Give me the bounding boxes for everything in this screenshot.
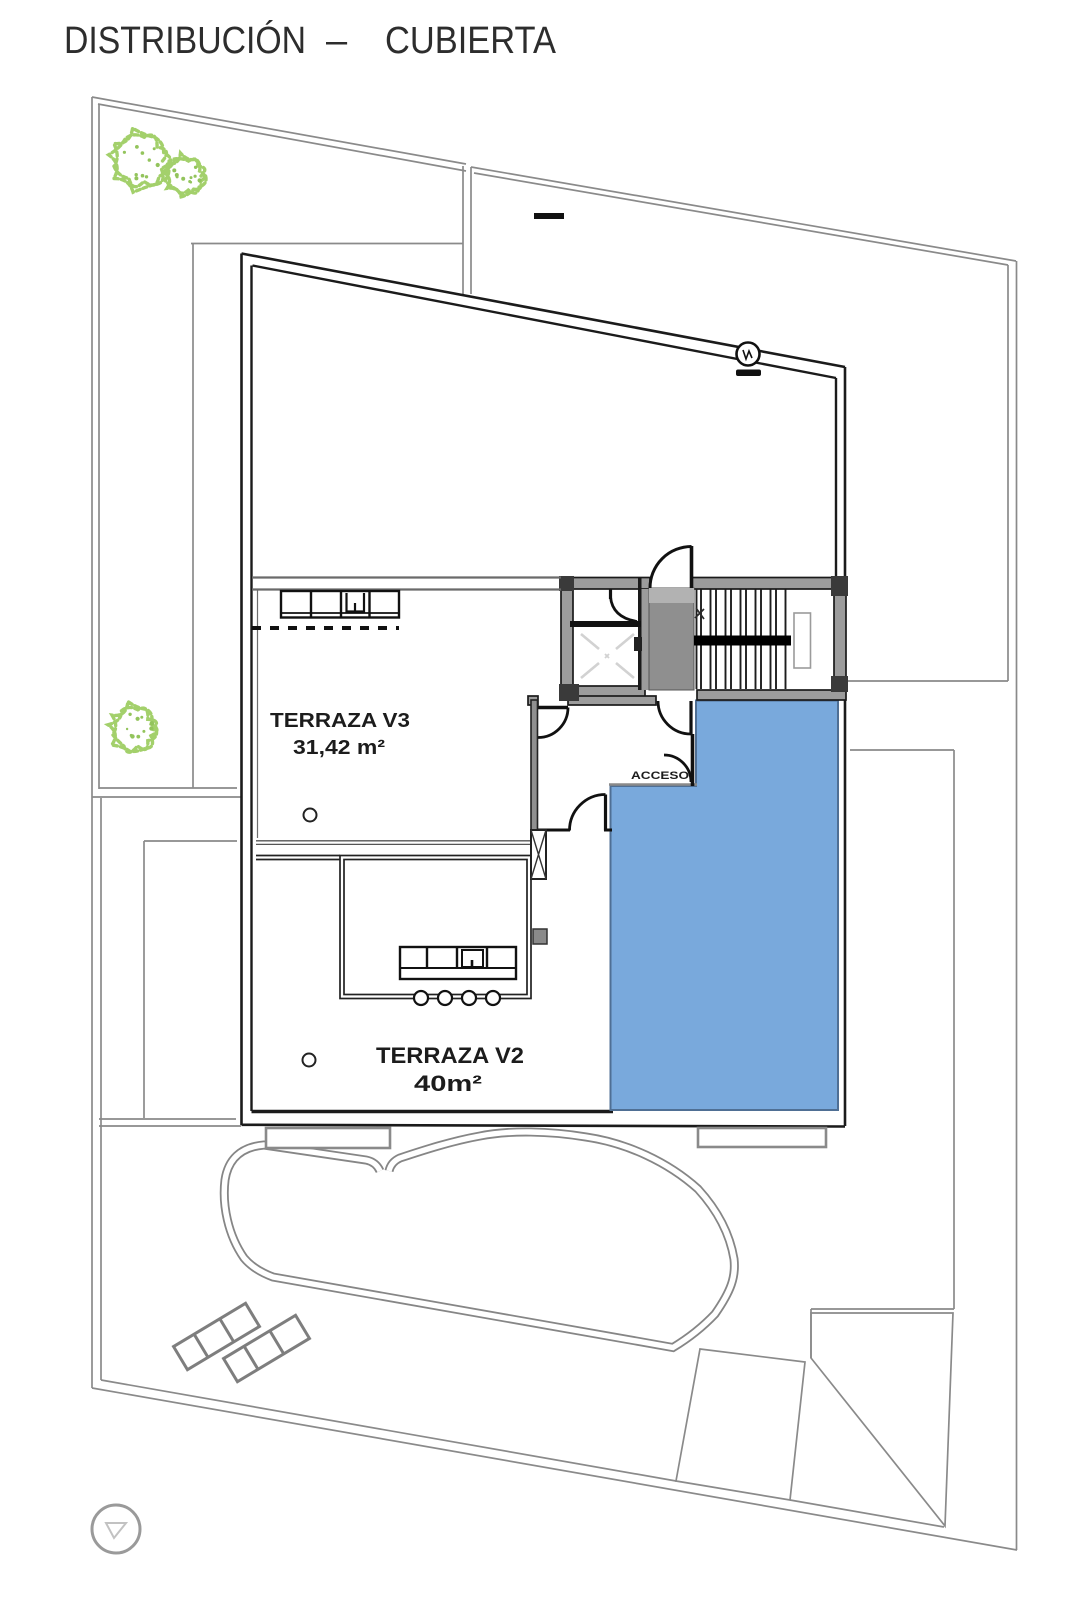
svg-text:CUBIERTA: CUBIERTA <box>385 20 557 62</box>
svg-text:40m²: 40m² <box>414 1071 483 1096</box>
svg-text:31,42 m²: 31,42 m² <box>293 737 385 759</box>
svg-text:TERRAZA V2: TERRAZA V2 <box>376 1043 524 1068</box>
svg-text:TERRAZA V3: TERRAZA V3 <box>270 710 410 732</box>
svg-text:ACCESO: ACCESO <box>631 770 690 782</box>
svg-text:DISTRIBUCIÓN: DISTRIBUCIÓN <box>64 19 306 62</box>
svg-text:–: – <box>326 20 348 62</box>
